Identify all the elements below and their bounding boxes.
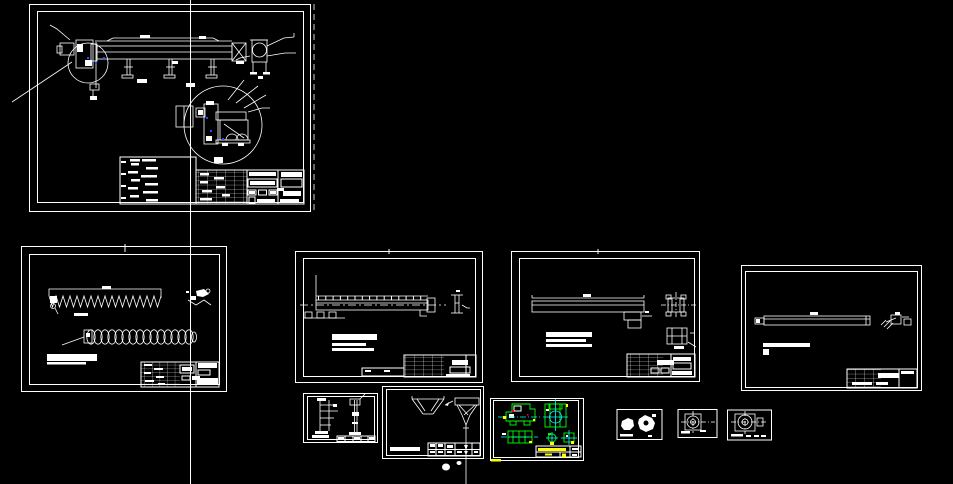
title-block[interactable] xyxy=(196,170,304,204)
shaft-view[interactable] xyxy=(755,312,870,325)
corner-sketch[interactable] xyxy=(186,289,211,305)
sheet-hopper[interactable] xyxy=(383,387,484,484)
sheet-shaft[interactable] xyxy=(742,266,922,391)
conveyor-side-view[interactable] xyxy=(12,25,246,102)
sheet-trough[interactable] xyxy=(296,249,483,383)
grip-point[interactable] xyxy=(222,138,224,140)
note-text-blob xyxy=(546,332,592,337)
housing-view-top-right[interactable] xyxy=(543,399,568,431)
note-text-blob xyxy=(491,459,501,462)
sheet-assembly[interactable] xyxy=(12,4,314,212)
small-part-bottom-middle[interactable] xyxy=(546,432,558,445)
sheet-flange-2[interactable] xyxy=(728,410,772,440)
grip-point[interactable] xyxy=(87,57,89,59)
note-text-blob xyxy=(332,348,374,351)
note-text-blob xyxy=(700,430,706,432)
cover-beam-view[interactable] xyxy=(532,294,652,328)
gear-part-right[interactable] xyxy=(638,414,656,432)
title-block[interactable] xyxy=(627,354,695,377)
title-block[interactable] xyxy=(536,446,581,458)
note-text-blob xyxy=(731,434,743,437)
sheet-small-parts[interactable] xyxy=(617,410,662,440)
sheet-flange-1[interactable] xyxy=(678,410,717,438)
title-block[interactable] xyxy=(362,355,476,377)
note-text-blob xyxy=(546,339,586,342)
note-text-blob xyxy=(648,435,652,437)
note-text-blob xyxy=(763,343,810,347)
sheet-cover[interactable] xyxy=(512,249,700,382)
note-text-blob xyxy=(47,362,86,365)
conveyor-end-view[interactable] xyxy=(236,33,296,79)
title-block[interactable] xyxy=(847,369,917,388)
note-text-blob xyxy=(390,447,420,451)
small-part-bottom-right[interactable] xyxy=(561,430,577,445)
screw-helix-view[interactable] xyxy=(62,330,197,345)
support-leg-right[interactable] xyxy=(349,394,365,435)
note-text-blob xyxy=(620,434,633,437)
housing-view-bottom-left[interactable] xyxy=(501,431,538,443)
gear-part-left[interactable] xyxy=(621,418,634,430)
grip-point[interactable] xyxy=(95,62,97,64)
note-text-blob xyxy=(763,349,769,355)
sheet-bearing-color[interactable] xyxy=(491,399,584,462)
note-text-blob xyxy=(546,344,592,347)
title-block[interactable] xyxy=(141,362,219,387)
cad-drawing-canvas[interactable] xyxy=(0,0,953,484)
parts-list-table[interactable] xyxy=(120,157,196,204)
small-detail-top[interactable] xyxy=(661,292,697,318)
flange-view[interactable] xyxy=(681,411,715,433)
note-text-blob xyxy=(746,435,751,437)
title-block[interactable] xyxy=(428,443,480,456)
detail-label-blob xyxy=(214,157,223,163)
sheet-screw[interactable] xyxy=(22,244,227,392)
note-text-blob xyxy=(312,435,329,438)
note-text-blob xyxy=(681,431,690,434)
title-strip[interactable] xyxy=(337,436,375,442)
note-text-blob xyxy=(754,435,759,437)
trough-beam-view[interactable] xyxy=(300,275,446,318)
title-text-blob xyxy=(538,448,566,451)
grip-point[interactable] xyxy=(210,130,212,132)
funnel-left[interactable] xyxy=(412,396,444,414)
sheet-supports[interactable] xyxy=(304,394,378,443)
grip-point[interactable] xyxy=(103,57,105,59)
note-text-blob xyxy=(761,435,766,437)
grip-point[interactable] xyxy=(206,117,208,119)
spatter-below-sheet xyxy=(442,459,466,484)
note-text-blob xyxy=(332,343,366,346)
end-section-view[interactable] xyxy=(451,290,470,313)
small-detail-bottom[interactable] xyxy=(667,328,696,349)
screw-section-view[interactable] xyxy=(49,286,161,316)
note-text-blob xyxy=(47,354,97,361)
drawing-number-blob xyxy=(250,181,275,185)
note-text-blob xyxy=(332,334,377,340)
support-leg-left[interactable] xyxy=(315,398,338,434)
leader-arrowhead xyxy=(445,402,449,406)
hatched-detail[interactable] xyxy=(881,312,911,329)
flange-view[interactable] xyxy=(731,411,766,434)
housing-view-top-left[interactable] xyxy=(498,404,540,425)
